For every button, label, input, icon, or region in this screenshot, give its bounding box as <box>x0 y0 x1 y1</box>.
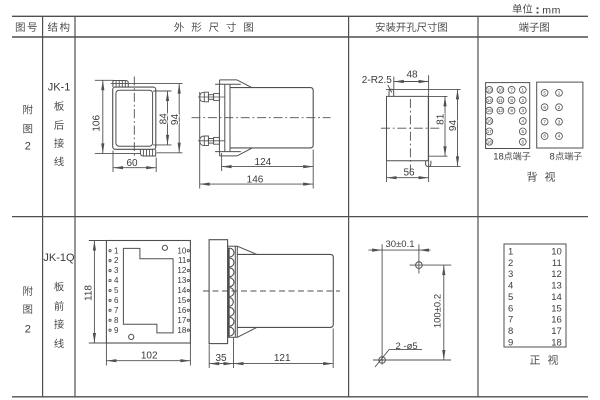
svg-text:1: 1 <box>558 90 561 95</box>
svg-text:5: 5 <box>508 292 513 303</box>
svg-text:7: 7 <box>508 315 513 326</box>
svg-text:8: 8 <box>508 326 513 337</box>
svg-text:106: 106 <box>92 115 103 132</box>
svg-text:7: 7 <box>114 306 119 315</box>
svg-text:2 -ø5: 2 -ø5 <box>396 341 418 352</box>
svg-text:5: 5 <box>543 90 546 95</box>
svg-text:17: 17 <box>551 326 562 337</box>
svg-text:11: 11 <box>552 258 562 269</box>
svg-text:12: 12 <box>177 266 186 275</box>
svg-text:121: 121 <box>274 353 291 364</box>
svg-text:18: 18 <box>487 139 493 144</box>
svg-text:56: 56 <box>403 167 415 178</box>
svg-text:30±0.1: 30±0.1 <box>386 239 415 250</box>
svg-text:9: 9 <box>510 108 513 113</box>
svg-text:60: 60 <box>126 158 138 169</box>
svg-text:16: 16 <box>177 306 186 315</box>
svg-text:4: 4 <box>522 119 525 124</box>
svg-text:2: 2 <box>25 324 31 336</box>
svg-text:2-R2.5: 2-R2.5 <box>362 75 392 86</box>
svg-text:7: 7 <box>510 87 513 92</box>
svg-text:6: 6 <box>522 139 525 144</box>
svg-text:JK-1Q: JK-1Q <box>43 252 75 264</box>
svg-text:9: 9 <box>114 326 119 335</box>
svg-text:16: 16 <box>487 119 493 124</box>
svg-text:2: 2 <box>558 105 561 110</box>
svg-text:100±0.2: 100±0.2 <box>433 294 444 328</box>
svg-text:6: 6 <box>508 303 513 314</box>
svg-text:14: 14 <box>177 286 186 295</box>
svg-text:3: 3 <box>508 269 513 280</box>
svg-text:13: 13 <box>177 276 186 285</box>
svg-text:9: 9 <box>508 338 513 349</box>
svg-text:1: 1 <box>114 246 119 255</box>
svg-text:17: 17 <box>177 316 186 325</box>
svg-text:JK-1: JK-1 <box>48 82 71 94</box>
svg-text:8: 8 <box>550 151 555 162</box>
svg-text:35: 35 <box>215 353 227 364</box>
svg-text:10: 10 <box>551 247 562 258</box>
svg-text:2: 2 <box>114 256 119 265</box>
svg-text:6: 6 <box>543 105 546 110</box>
svg-text:18: 18 <box>177 326 186 335</box>
svg-text:13: 13 <box>487 87 493 92</box>
svg-text:146: 146 <box>247 174 264 185</box>
svg-text:118: 118 <box>83 285 94 301</box>
svg-text:124: 124 <box>255 157 272 168</box>
svg-text:3: 3 <box>558 119 561 124</box>
svg-text:12: 12 <box>551 269 562 280</box>
svg-text:11: 11 <box>178 256 187 265</box>
svg-text:13: 13 <box>551 281 562 292</box>
svg-text:4: 4 <box>558 134 561 139</box>
svg-text:3: 3 <box>522 108 525 113</box>
svg-text:11: 11 <box>498 98 503 103</box>
svg-text:mm: mm <box>542 5 561 17</box>
svg-text:17: 17 <box>487 129 493 134</box>
svg-text:8: 8 <box>543 134 546 139</box>
svg-text:81: 81 <box>436 113 447 125</box>
svg-text:5: 5 <box>522 129 525 134</box>
svg-text:15: 15 <box>487 108 493 113</box>
svg-text:94: 94 <box>170 114 181 126</box>
svg-text:16: 16 <box>551 315 562 326</box>
svg-text:7: 7 <box>543 119 546 124</box>
svg-text:102: 102 <box>141 350 158 361</box>
svg-text:18: 18 <box>493 151 504 162</box>
svg-text:10: 10 <box>498 87 504 92</box>
svg-text:14: 14 <box>551 292 562 303</box>
svg-text:15: 15 <box>177 296 186 305</box>
svg-text:5: 5 <box>114 286 119 295</box>
svg-text:6: 6 <box>114 296 119 305</box>
svg-text:10: 10 <box>177 246 186 255</box>
svg-text:18: 18 <box>551 338 562 349</box>
svg-text:14: 14 <box>487 98 493 103</box>
svg-text:2: 2 <box>522 98 525 103</box>
svg-text:84: 84 <box>159 113 170 125</box>
svg-text:4: 4 <box>114 276 119 285</box>
svg-text:4: 4 <box>508 281 513 292</box>
svg-text:48: 48 <box>406 69 418 80</box>
svg-text:1: 1 <box>522 87 525 92</box>
svg-text:2: 2 <box>508 258 513 269</box>
svg-text:8: 8 <box>114 316 119 325</box>
svg-text:1: 1 <box>508 247 513 258</box>
svg-text:8: 8 <box>510 98 513 103</box>
svg-text:2: 2 <box>25 141 31 153</box>
svg-text:3: 3 <box>114 266 119 275</box>
svg-text:12: 12 <box>498 108 504 113</box>
svg-text:94: 94 <box>448 120 459 132</box>
svg-text:15: 15 <box>551 303 562 314</box>
